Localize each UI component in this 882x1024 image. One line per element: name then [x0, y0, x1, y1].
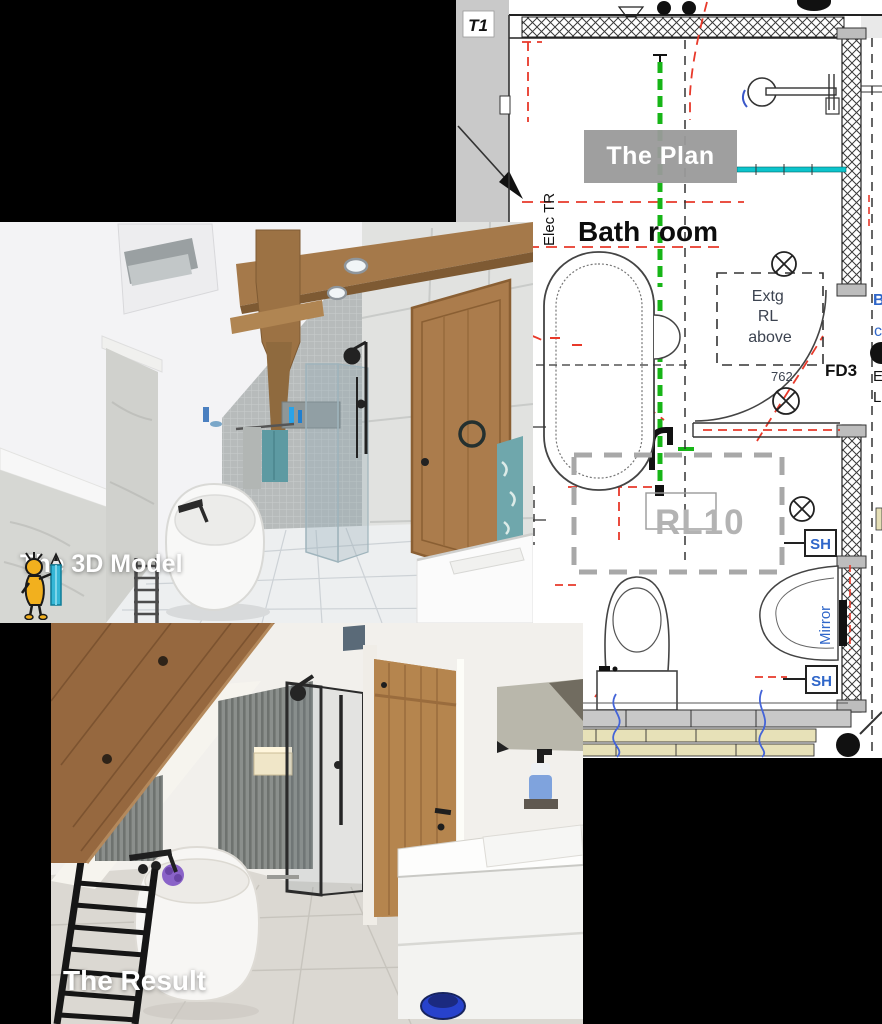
bottle: [289, 407, 294, 424]
elec-label: Elec TR: [541, 193, 558, 246]
handset: [334, 761, 342, 769]
mascot-body: [26, 576, 44, 605]
door-keyhole: [438, 824, 445, 831]
zone-tag: RL10: [655, 503, 745, 542]
result-photo: The Result: [51, 623, 583, 1024]
edge-text-c: c: [874, 323, 882, 340]
room-name: Bath room: [578, 216, 718, 247]
shower-head: [344, 348, 360, 364]
extg-note-line2: RL: [758, 308, 779, 325]
beam-knot: [102, 754, 112, 764]
result-step-label: The Result: [63, 967, 206, 995]
gray-towel: [243, 427, 261, 489]
edge-text-l: L: [873, 389, 881, 406]
downlight-symbol: [657, 1, 671, 15]
mascot-head: [26, 559, 42, 575]
door-hinge: [381, 682, 387, 688]
3d-model-render: The 3D Model: [0, 222, 533, 623]
shower-tag-lower-text: SH: [811, 673, 832, 690]
bottle: [298, 410, 302, 423]
mirror-label: Mirror: [817, 606, 834, 645]
handset: [357, 400, 365, 408]
result-step-label-text: The Result: [63, 967, 206, 995]
designer-mascot-icon: [20, 552, 68, 620]
column-symbol: [836, 733, 860, 757]
edge-text-b: B: [873, 292, 882, 309]
result-scene: [51, 623, 583, 1024]
towel-rail: [236, 424, 294, 489]
shower-tag-upper-text: SH: [810, 536, 831, 553]
shower-drain: [267, 875, 299, 879]
sheet-tag: T1: [463, 11, 494, 37]
downlight-symbol: [682, 1, 696, 15]
plan-step-label-text: The Plan: [606, 142, 714, 171]
extg-note-line1: Extg: [752, 288, 784, 305]
bottle: [203, 407, 209, 422]
door-dimension: 762: [771, 369, 793, 384]
door-handle: [421, 458, 429, 466]
teal-towel-right: [497, 436, 523, 552]
mirror: [497, 679, 583, 753]
collage-canvas: T1: [0, 0, 882, 1024]
glass-shower-enclosure: [306, 364, 368, 562]
downlight: [345, 259, 367, 273]
floating-vanity: [398, 825, 583, 1019]
beam-knot: [158, 656, 168, 666]
sheet-tag-text: T1: [468, 16, 488, 35]
transom-window: [343, 625, 365, 651]
mascot-hair: [26, 552, 42, 559]
model-step-label: The 3D Model: [20, 552, 183, 581]
shower-head: [290, 685, 306, 701]
door-tag: FD3: [825, 361, 857, 380]
edge-text-e: E: [873, 368, 882, 385]
wall-top: [509, 15, 882, 38]
mirror-symbol: [839, 600, 847, 646]
downlight: [328, 287, 346, 299]
plan-step-label: The Plan: [584, 130, 737, 183]
robot-vacuum: [421, 993, 465, 1019]
soap-dish: [210, 421, 222, 427]
extg-note-line3: above: [748, 329, 792, 346]
